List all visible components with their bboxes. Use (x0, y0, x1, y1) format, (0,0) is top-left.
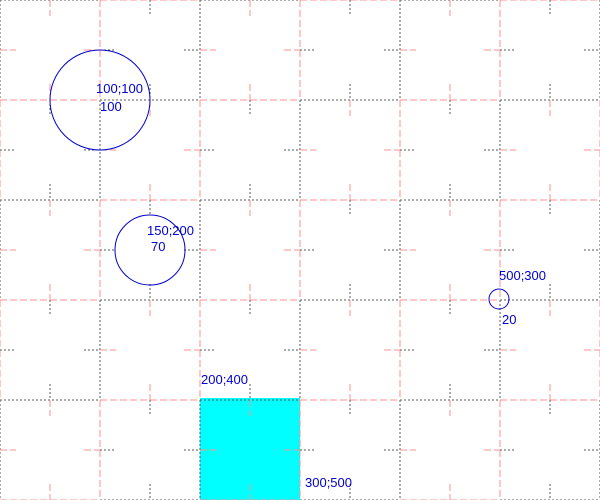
circle2-coord-label: 150;200 (147, 224, 194, 238)
rect-bottomright-coord-label: 300;500 (305, 476, 352, 490)
circle1-radius-label: 100 (100, 100, 122, 114)
circle-shape-3[interactable] (489, 289, 509, 309)
rect-topleft-coord-label: 200;400 (201, 373, 248, 387)
grid-layer (0, 0, 600, 500)
drawing-canvas[interactable]: 100;100 100 150;200 70 500;300 20 200;40… (0, 0, 600, 500)
circle3-radius-label: 20 (502, 313, 516, 327)
circle1-coord-label: 100;100 (96, 82, 143, 96)
circle3-coord-label: 500;300 (499, 269, 546, 283)
grid-and-shapes-layer (0, 0, 600, 500)
circle2-radius-label: 70 (151, 240, 165, 254)
